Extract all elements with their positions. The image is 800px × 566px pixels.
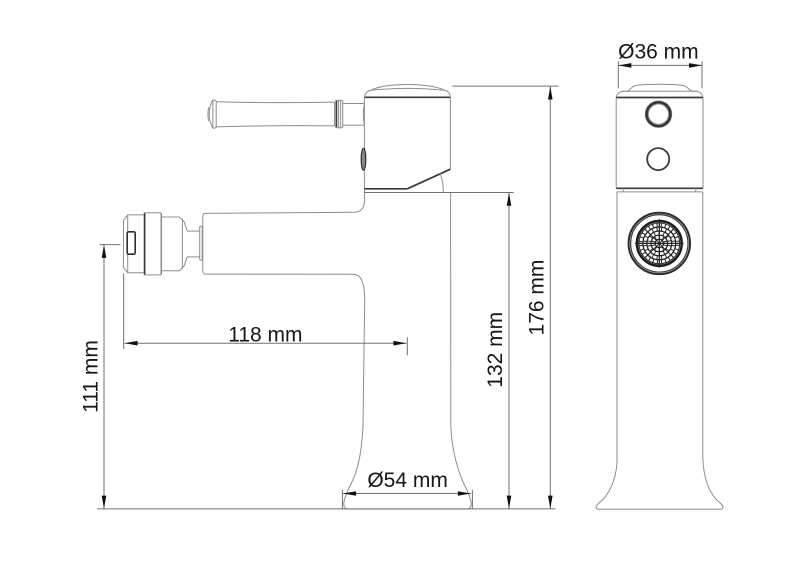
svg-text:176 mm: 176 mm <box>526 260 549 336</box>
svg-text:Ø54 mm: Ø54 mm <box>367 469 448 492</box>
svg-text:Ø36 mm: Ø36 mm <box>618 41 699 64</box>
svg-text:118 mm: 118 mm <box>228 323 302 346</box>
svg-text:111 mm: 111 mm <box>80 340 103 413</box>
svg-text:132 mm: 132 mm <box>484 312 507 388</box>
